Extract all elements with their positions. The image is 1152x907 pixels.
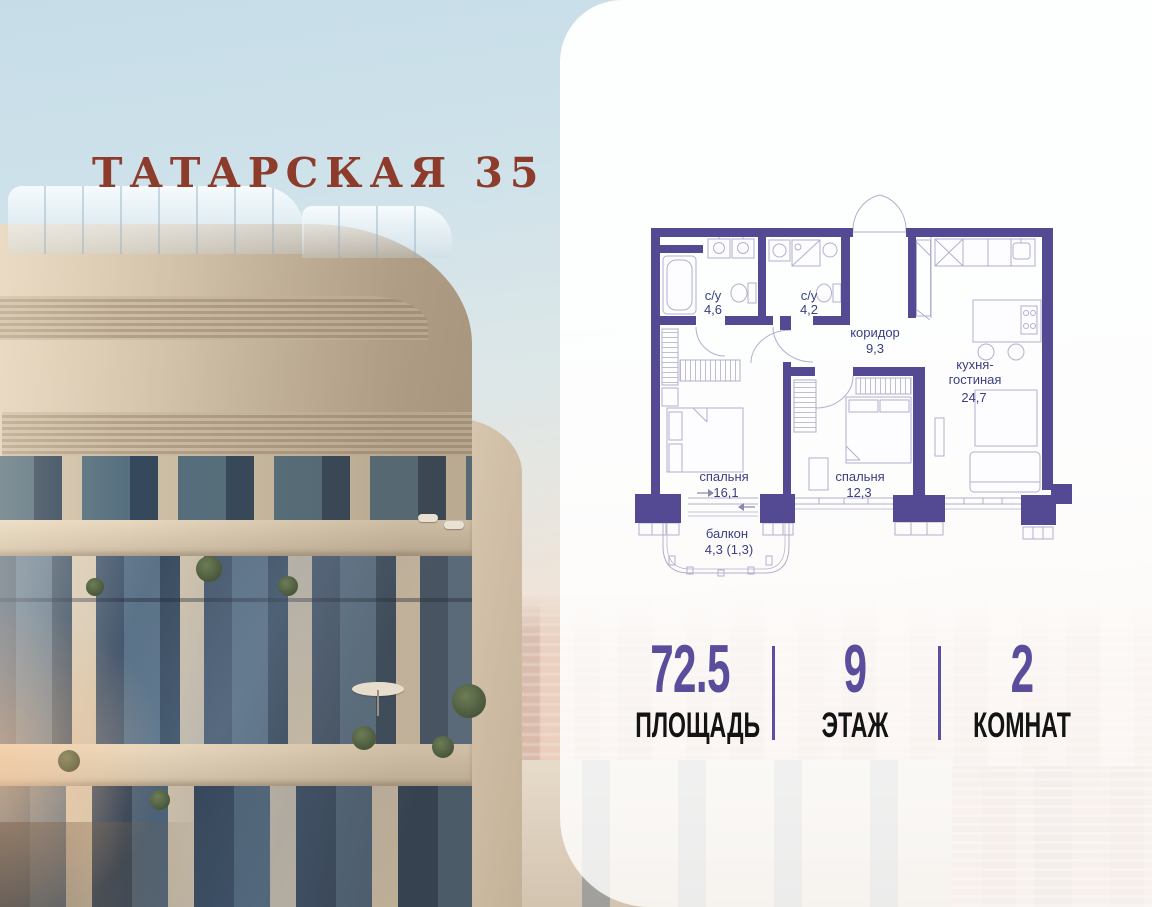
stat-rooms: 2 КОМНАТ bbox=[939, 642, 1105, 744]
room-area-bath1: 4,6 bbox=[704, 302, 722, 317]
stat-floor: 9 ЭТАЖ bbox=[772, 642, 938, 744]
stat-rooms-value: 2 bbox=[971, 642, 1074, 696]
page: ТАТАРСКАЯ 35 bbox=[0, 0, 1152, 907]
stat-area: 72.5 ПЛОЩАДЬ bbox=[607, 642, 773, 744]
terrace-tree bbox=[452, 684, 486, 718]
roof-glass-balustrade bbox=[302, 206, 452, 258]
room-label-kitchen-2: гостиная bbox=[949, 372, 1002, 387]
cornice-band bbox=[0, 296, 428, 340]
room-label-corridor: коридор bbox=[850, 325, 900, 340]
lounge-chair bbox=[444, 521, 464, 529]
room-area-corridor: 9,3 bbox=[866, 341, 884, 356]
room-area-kitchen: 24,7 bbox=[961, 390, 986, 405]
stat-area-value: 72.5 bbox=[639, 642, 742, 696]
room-area-balcony: 4,3 (1,3) bbox=[705, 542, 753, 557]
cornice-band bbox=[2, 412, 472, 458]
stat-floor-value: 9 bbox=[804, 642, 907, 696]
room-label-kitchen-1: кухня- bbox=[956, 357, 993, 372]
room-area-bath2: 4,2 bbox=[800, 302, 818, 317]
room-label-bedroom2: спальня bbox=[835, 469, 884, 484]
patio-umbrella-pole bbox=[377, 690, 379, 716]
stat-area-label: ПЛОЩАДЬ bbox=[635, 708, 745, 744]
room-area-bedroom2: 12,3 bbox=[846, 485, 871, 500]
room-label-bath1: с/у bbox=[705, 288, 722, 303]
apartment-card[interactable]: с/у 4,6 с/у 4,2 коридор 9,3 кухня- гости… bbox=[560, 0, 1152, 907]
terrace-plant bbox=[352, 726, 376, 750]
stat-floor-label: ЭТАЖ bbox=[800, 708, 910, 744]
terrace-plant bbox=[196, 556, 222, 582]
stat-rooms-label: КОМНАТ bbox=[967, 708, 1077, 744]
project-title: ТАТАРСКАЯ 35 bbox=[92, 149, 552, 197]
window-row-top bbox=[0, 456, 472, 520]
sunset-glow bbox=[0, 580, 190, 907]
room-label-bath2: с/у bbox=[801, 288, 818, 303]
room-area-bedroom1: 16,1 bbox=[713, 485, 738, 500]
floor-plan: с/у 4,6 с/у 4,2 коридор 9,3 кухня- гости… bbox=[623, 190, 1085, 590]
room-label-balcony: балкон bbox=[706, 526, 748, 541]
terrace-plant bbox=[278, 576, 298, 596]
terrace-slab bbox=[0, 520, 472, 556]
room-label-bedroom1: спальня bbox=[699, 469, 748, 484]
lounge-chair bbox=[418, 514, 438, 522]
terrace-plant bbox=[432, 736, 454, 758]
